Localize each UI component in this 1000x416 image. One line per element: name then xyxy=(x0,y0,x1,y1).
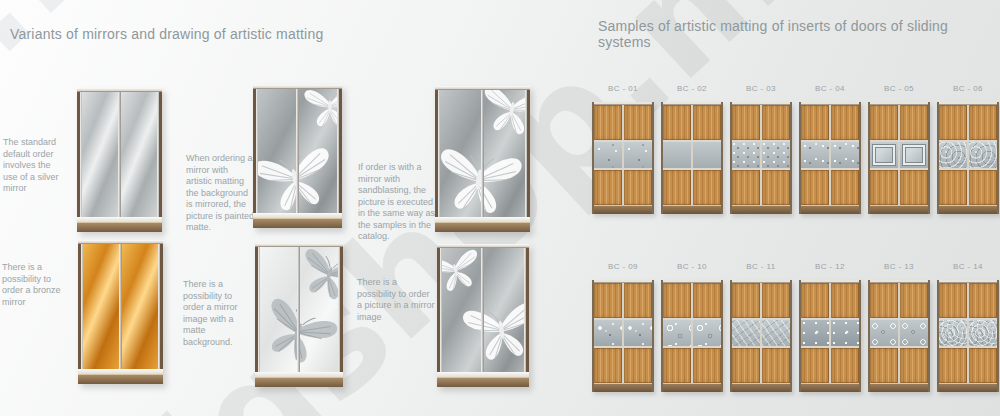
wood-panel xyxy=(939,348,967,383)
matting-insert xyxy=(663,320,691,346)
sample-label: BC - 14 xyxy=(937,262,999,274)
sample-label: BC - 11 xyxy=(730,262,792,274)
sample-label: BC - 05 xyxy=(868,84,930,96)
sample-plinth xyxy=(870,205,928,214)
wood-panel xyxy=(831,170,859,205)
sample-upper-wood-panels xyxy=(732,283,790,318)
sample-label: BC - 10 xyxy=(661,262,723,274)
matting-insert xyxy=(870,142,898,168)
wood-panel xyxy=(594,283,622,318)
matting-insert xyxy=(900,320,928,346)
door-divider-profile xyxy=(296,89,299,213)
sample-plinth xyxy=(732,205,790,214)
wood-panel xyxy=(831,105,859,140)
matting-insert xyxy=(624,142,652,168)
sample-upper-wood-panels xyxy=(870,283,928,318)
sample-plinth xyxy=(663,205,721,214)
wardrobe-doors xyxy=(77,92,162,217)
wardrobe-doors xyxy=(435,90,530,217)
matting-insert xyxy=(900,142,928,168)
sample-matting-band xyxy=(663,140,721,170)
wood-panel xyxy=(663,283,691,318)
wood-panel xyxy=(969,170,997,205)
matting-insert xyxy=(762,320,790,346)
sample-bc13: BC - 13 xyxy=(868,262,930,392)
wood-panel xyxy=(624,283,652,318)
door-divider-profile xyxy=(481,248,484,372)
sample-bc02: BC - 02 xyxy=(661,84,723,214)
door-divider-profile xyxy=(297,247,300,372)
wood-panel xyxy=(969,348,997,383)
wood-panel xyxy=(594,170,622,205)
sample-upper-wood-panels xyxy=(870,105,928,140)
wardrobe-plinth xyxy=(437,377,529,387)
wood-panel xyxy=(969,105,997,140)
mirror-image-picture-wardrobe-image xyxy=(437,244,529,387)
sample-bc03: BC - 03 xyxy=(730,84,792,214)
sample-lower-wood-panels xyxy=(594,348,652,383)
sample-matting-band xyxy=(870,318,928,348)
matting-insert xyxy=(801,142,829,168)
sample-matting-band xyxy=(870,140,928,170)
matte-background-wardrobe-image xyxy=(255,243,343,387)
matting-insert xyxy=(831,320,859,346)
sample-plinth xyxy=(594,205,652,214)
wardrobe-doors xyxy=(78,244,163,369)
sample-bc01: BC - 01 xyxy=(592,84,654,214)
wood-panel xyxy=(693,105,721,140)
sample-wardrobe-image xyxy=(937,102,999,214)
sample-matting-band xyxy=(801,140,859,170)
matting-insert xyxy=(594,142,622,168)
sample-label: BC - 13 xyxy=(868,262,930,274)
note-artistic-matting: When ordering a mirror with artistic mat… xyxy=(186,153,256,234)
wood-panel xyxy=(762,348,790,383)
sample-bc09: BC - 09 xyxy=(592,262,654,392)
sample-wardrobe-image xyxy=(592,102,654,214)
wood-panel xyxy=(831,348,859,383)
door-divider-profile xyxy=(119,244,122,369)
sample-upper-wood-panels xyxy=(594,283,652,318)
sample-plinth xyxy=(732,383,790,392)
matting-insert xyxy=(969,142,997,168)
sample-lower-wood-panels xyxy=(663,170,721,205)
note-matte-background: There is a possibility to order a mirror… xyxy=(183,279,255,348)
sample-upper-wood-panels xyxy=(939,105,997,140)
sample-plinth xyxy=(594,383,652,392)
sample-bc11: BC - 11 xyxy=(730,262,792,392)
left-section-title: Variants of mirrors and drawing of artis… xyxy=(10,26,323,42)
wood-panel xyxy=(624,105,652,140)
wood-panel xyxy=(594,348,622,383)
wood-panel xyxy=(732,105,760,140)
sample-plinth xyxy=(801,205,859,214)
wood-panel xyxy=(939,105,967,140)
wood-panel xyxy=(969,283,997,318)
wardrobe-plinth xyxy=(77,222,162,232)
wardrobe-doors xyxy=(253,89,342,213)
matting-insert xyxy=(732,142,760,168)
sample-matting-band xyxy=(732,318,790,348)
wood-panel xyxy=(801,105,829,140)
sample-wardrobe-image xyxy=(730,280,792,392)
sample-wardrobe-image xyxy=(592,280,654,392)
sample-lower-wood-panels xyxy=(732,170,790,205)
matting-insert xyxy=(732,320,760,346)
matting-insert xyxy=(624,320,652,346)
wardrobe-plinth xyxy=(255,377,343,387)
wood-panel xyxy=(900,283,928,318)
matting-insert xyxy=(693,320,721,346)
sample-wardrobe-image xyxy=(661,280,723,392)
catalog-page: bigshop.md bigshop.md Variants of mirror… xyxy=(0,0,1000,416)
wood-panel xyxy=(870,283,898,318)
wood-panel xyxy=(663,105,691,140)
wood-panel xyxy=(939,283,967,318)
matting-insert xyxy=(939,320,967,346)
sample-lower-wood-panels xyxy=(594,170,652,205)
wood-panel xyxy=(624,170,652,205)
matting-insert xyxy=(801,320,829,346)
matting-insert xyxy=(762,142,790,168)
matting-insert xyxy=(969,320,997,346)
sample-bc06: BC - 06 xyxy=(937,84,999,214)
sample-upper-wood-panels xyxy=(732,105,790,140)
sample-lower-wood-panels xyxy=(732,348,790,383)
sample-label: BC - 03 xyxy=(730,84,792,96)
wardrobe-plinth xyxy=(253,218,342,228)
matting-insert xyxy=(939,142,967,168)
sample-lower-wood-panels xyxy=(870,348,928,383)
sample-plinth xyxy=(939,383,997,392)
sample-bc04: BC - 04 xyxy=(799,84,861,214)
wood-panel xyxy=(939,170,967,205)
sample-lower-wood-panels xyxy=(801,348,859,383)
matting-insert xyxy=(693,142,721,168)
sandblasting-mirror-wardrobe-image xyxy=(435,86,530,232)
wood-panel xyxy=(732,348,760,383)
right-section-title: Samples of artistic matting of inserts o… xyxy=(598,18,1000,50)
wood-panel xyxy=(900,170,928,205)
wood-panel xyxy=(870,170,898,205)
sample-upper-wood-panels xyxy=(801,105,859,140)
sample-lower-wood-panels xyxy=(663,348,721,383)
sample-matting-band xyxy=(801,318,859,348)
wood-panel xyxy=(663,348,691,383)
sample-plinth xyxy=(801,383,859,392)
sample-lower-wood-panels xyxy=(939,348,997,383)
sample-wardrobe-image xyxy=(661,102,723,214)
note-sandblasting: If order is with a mirror with sandblast… xyxy=(358,162,436,243)
sample-matting-band xyxy=(663,318,721,348)
sample-matting-band xyxy=(939,140,997,170)
sample-plinth xyxy=(663,383,721,392)
bronze-mirror-wardrobe-image xyxy=(78,240,163,384)
wood-panel xyxy=(801,283,829,318)
sample-lower-wood-panels xyxy=(939,170,997,205)
wardrobe-plinth xyxy=(78,374,163,384)
sample-label: BC - 12 xyxy=(799,262,861,274)
artistic-matting-mirror-wardrobe-image xyxy=(253,85,342,228)
matting-insert xyxy=(594,320,622,346)
sample-wardrobe-image xyxy=(799,280,861,392)
wood-panel xyxy=(594,105,622,140)
sample-wardrobe-image xyxy=(937,280,999,392)
wood-panel xyxy=(693,170,721,205)
wood-panel xyxy=(732,170,760,205)
sample-label: BC - 09 xyxy=(592,262,654,274)
sample-wardrobe-image xyxy=(868,280,930,392)
wood-panel xyxy=(693,283,721,318)
sample-label: BC - 06 xyxy=(937,84,999,96)
sample-plinth xyxy=(870,383,928,392)
silver-mirror-wardrobe-image xyxy=(77,88,162,232)
sample-bc14: BC - 14 xyxy=(937,262,999,392)
wood-panel xyxy=(762,283,790,318)
wood-panel xyxy=(762,170,790,205)
note-bronze-mirror: There is a possibility to order a bronze… xyxy=(2,262,68,308)
wood-panel xyxy=(801,348,829,383)
sample-upper-wood-panels xyxy=(663,283,721,318)
wood-panel xyxy=(762,105,790,140)
note-mirror-image: There is a possibility to order a pictur… xyxy=(357,277,437,323)
wood-panel xyxy=(663,170,691,205)
sample-bc12: BC - 12 xyxy=(799,262,861,392)
sample-label: BC - 01 xyxy=(592,84,654,96)
sample-label: BC - 02 xyxy=(661,84,723,96)
wood-panel xyxy=(900,348,928,383)
matting-insert xyxy=(831,142,859,168)
sample-matting-band xyxy=(594,140,652,170)
sample-lower-wood-panels xyxy=(870,170,928,205)
matting-insert xyxy=(663,142,691,168)
wood-panel xyxy=(870,348,898,383)
door-divider-profile xyxy=(118,92,121,217)
sample-upper-wood-panels xyxy=(801,283,859,318)
sample-plinth xyxy=(939,205,997,214)
sample-wardrobe-image xyxy=(730,102,792,214)
sample-wardrobe-image xyxy=(799,102,861,214)
sample-upper-wood-panels xyxy=(594,105,652,140)
wood-panel xyxy=(624,348,652,383)
sample-lower-wood-panels xyxy=(801,170,859,205)
sample-upper-wood-panels xyxy=(939,283,997,318)
wood-panel xyxy=(870,105,898,140)
sample-matting-band xyxy=(594,318,652,348)
door-divider-profile xyxy=(481,90,484,217)
sample-matting-band xyxy=(732,140,790,170)
wood-panel xyxy=(900,105,928,140)
wardrobe-plinth xyxy=(435,222,530,232)
wood-panel xyxy=(732,283,760,318)
sample-upper-wood-panels xyxy=(663,105,721,140)
sample-wardrobe-image xyxy=(868,102,930,214)
note-silver-mirror: The standard default order involves the … xyxy=(3,137,65,195)
wood-panel xyxy=(831,283,859,318)
wardrobe-doors xyxy=(255,247,343,372)
sample-label: BC - 04 xyxy=(799,84,861,96)
sample-matting-band xyxy=(939,318,997,348)
sample-bc05: BC - 05 xyxy=(868,84,930,214)
sample-bc10: BC - 10 xyxy=(661,262,723,392)
wardrobe-doors xyxy=(437,248,529,372)
wood-panel xyxy=(693,348,721,383)
matting-insert xyxy=(870,320,898,346)
wood-panel xyxy=(801,170,829,205)
